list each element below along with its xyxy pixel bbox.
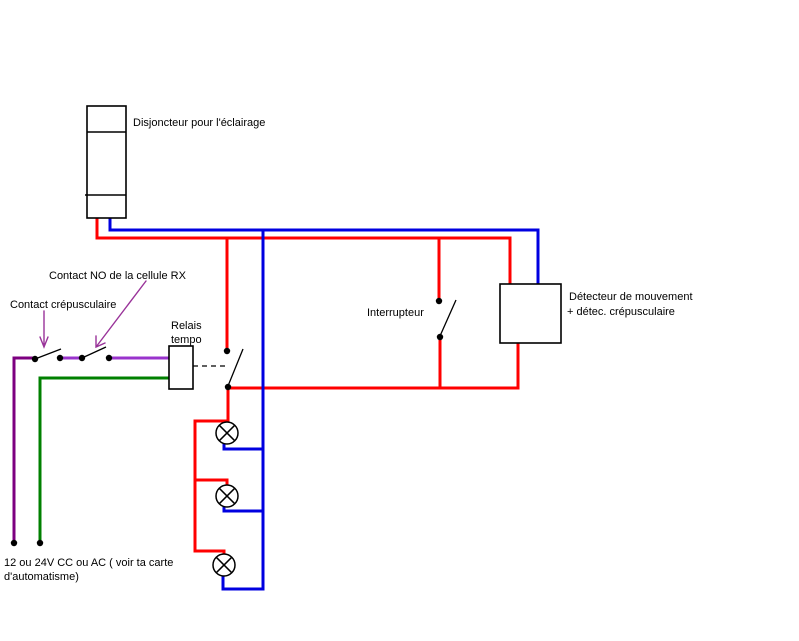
purple-wires-dark	[14, 358, 35, 543]
lamp-3	[213, 554, 235, 576]
switch-label: Interrupteur	[367, 307, 424, 319]
switch-blade	[440, 300, 456, 336]
schematic-page: Disjoncteur pour l'éclairage Contact NO …	[0, 0, 799, 641]
relay-contact-dot-bottom	[225, 384, 231, 390]
wire-red-lamp2-feed	[195, 480, 227, 485]
wire-green-supply	[40, 378, 169, 543]
wire-blue-lamp3-return	[223, 576, 263, 589]
twilight-contact-label: Contact crépusculaire	[10, 299, 116, 311]
lamp-2	[216, 485, 238, 507]
wire-red-bottom-bus	[228, 343, 518, 388]
supply-terminal-dot-purple	[11, 540, 17, 546]
switch-dot-top	[436, 298, 442, 304]
rx-contact-dot-left	[79, 355, 85, 361]
breaker-box	[87, 106, 126, 218]
rx-contact-dot-right	[106, 355, 112, 361]
switch-dot-bottom	[437, 334, 443, 340]
detector-box	[500, 284, 561, 343]
black-structure	[35, 106, 561, 389]
green-wires	[40, 378, 169, 543]
twilight-contact-dot-right	[57, 355, 63, 361]
detector-label-line2: + détec. crépusculaire	[567, 306, 675, 318]
twilight-contact-arrow	[40, 311, 48, 347]
wiring-diagram-canvas: Disjoncteur pour l'éclairage Contact NO …	[0, 0, 799, 641]
supply-label-line1: 12 ou 24V CC ou AC ( voir ta carte	[4, 557, 173, 569]
wire-blue-lamp1-return	[224, 444, 263, 449]
breaker-label: Disjoncteur pour l'éclairage	[133, 117, 265, 129]
relay-contact-dot-top	[224, 348, 230, 354]
rx-contact-arrow	[96, 281, 146, 347]
supply-terminal-dot-green	[37, 540, 43, 546]
rx-contact-blade	[82, 347, 106, 358]
lamp-1	[216, 422, 238, 444]
detector-label-line1: Détecteur de mouvement	[569, 291, 693, 303]
wire-purple-supply	[14, 358, 35, 543]
relay-label-line2: tempo	[171, 334, 202, 346]
wire-blue-lamp2-return	[224, 507, 263, 511]
red-wires	[97, 218, 518, 554]
relay-contact-blade	[228, 349, 243, 386]
pointer-arrows	[40, 281, 146, 347]
twilight-contact-dot-left	[32, 356, 38, 362]
wire-red-lamp3-feed	[195, 551, 224, 554]
rx-contact-label: Contact NO de la cellule RX	[49, 270, 187, 282]
relay-label-line1: Relais	[171, 320, 202, 332]
relay-box	[169, 346, 193, 389]
supply-label-line2: d'automatisme)	[4, 571, 79, 583]
